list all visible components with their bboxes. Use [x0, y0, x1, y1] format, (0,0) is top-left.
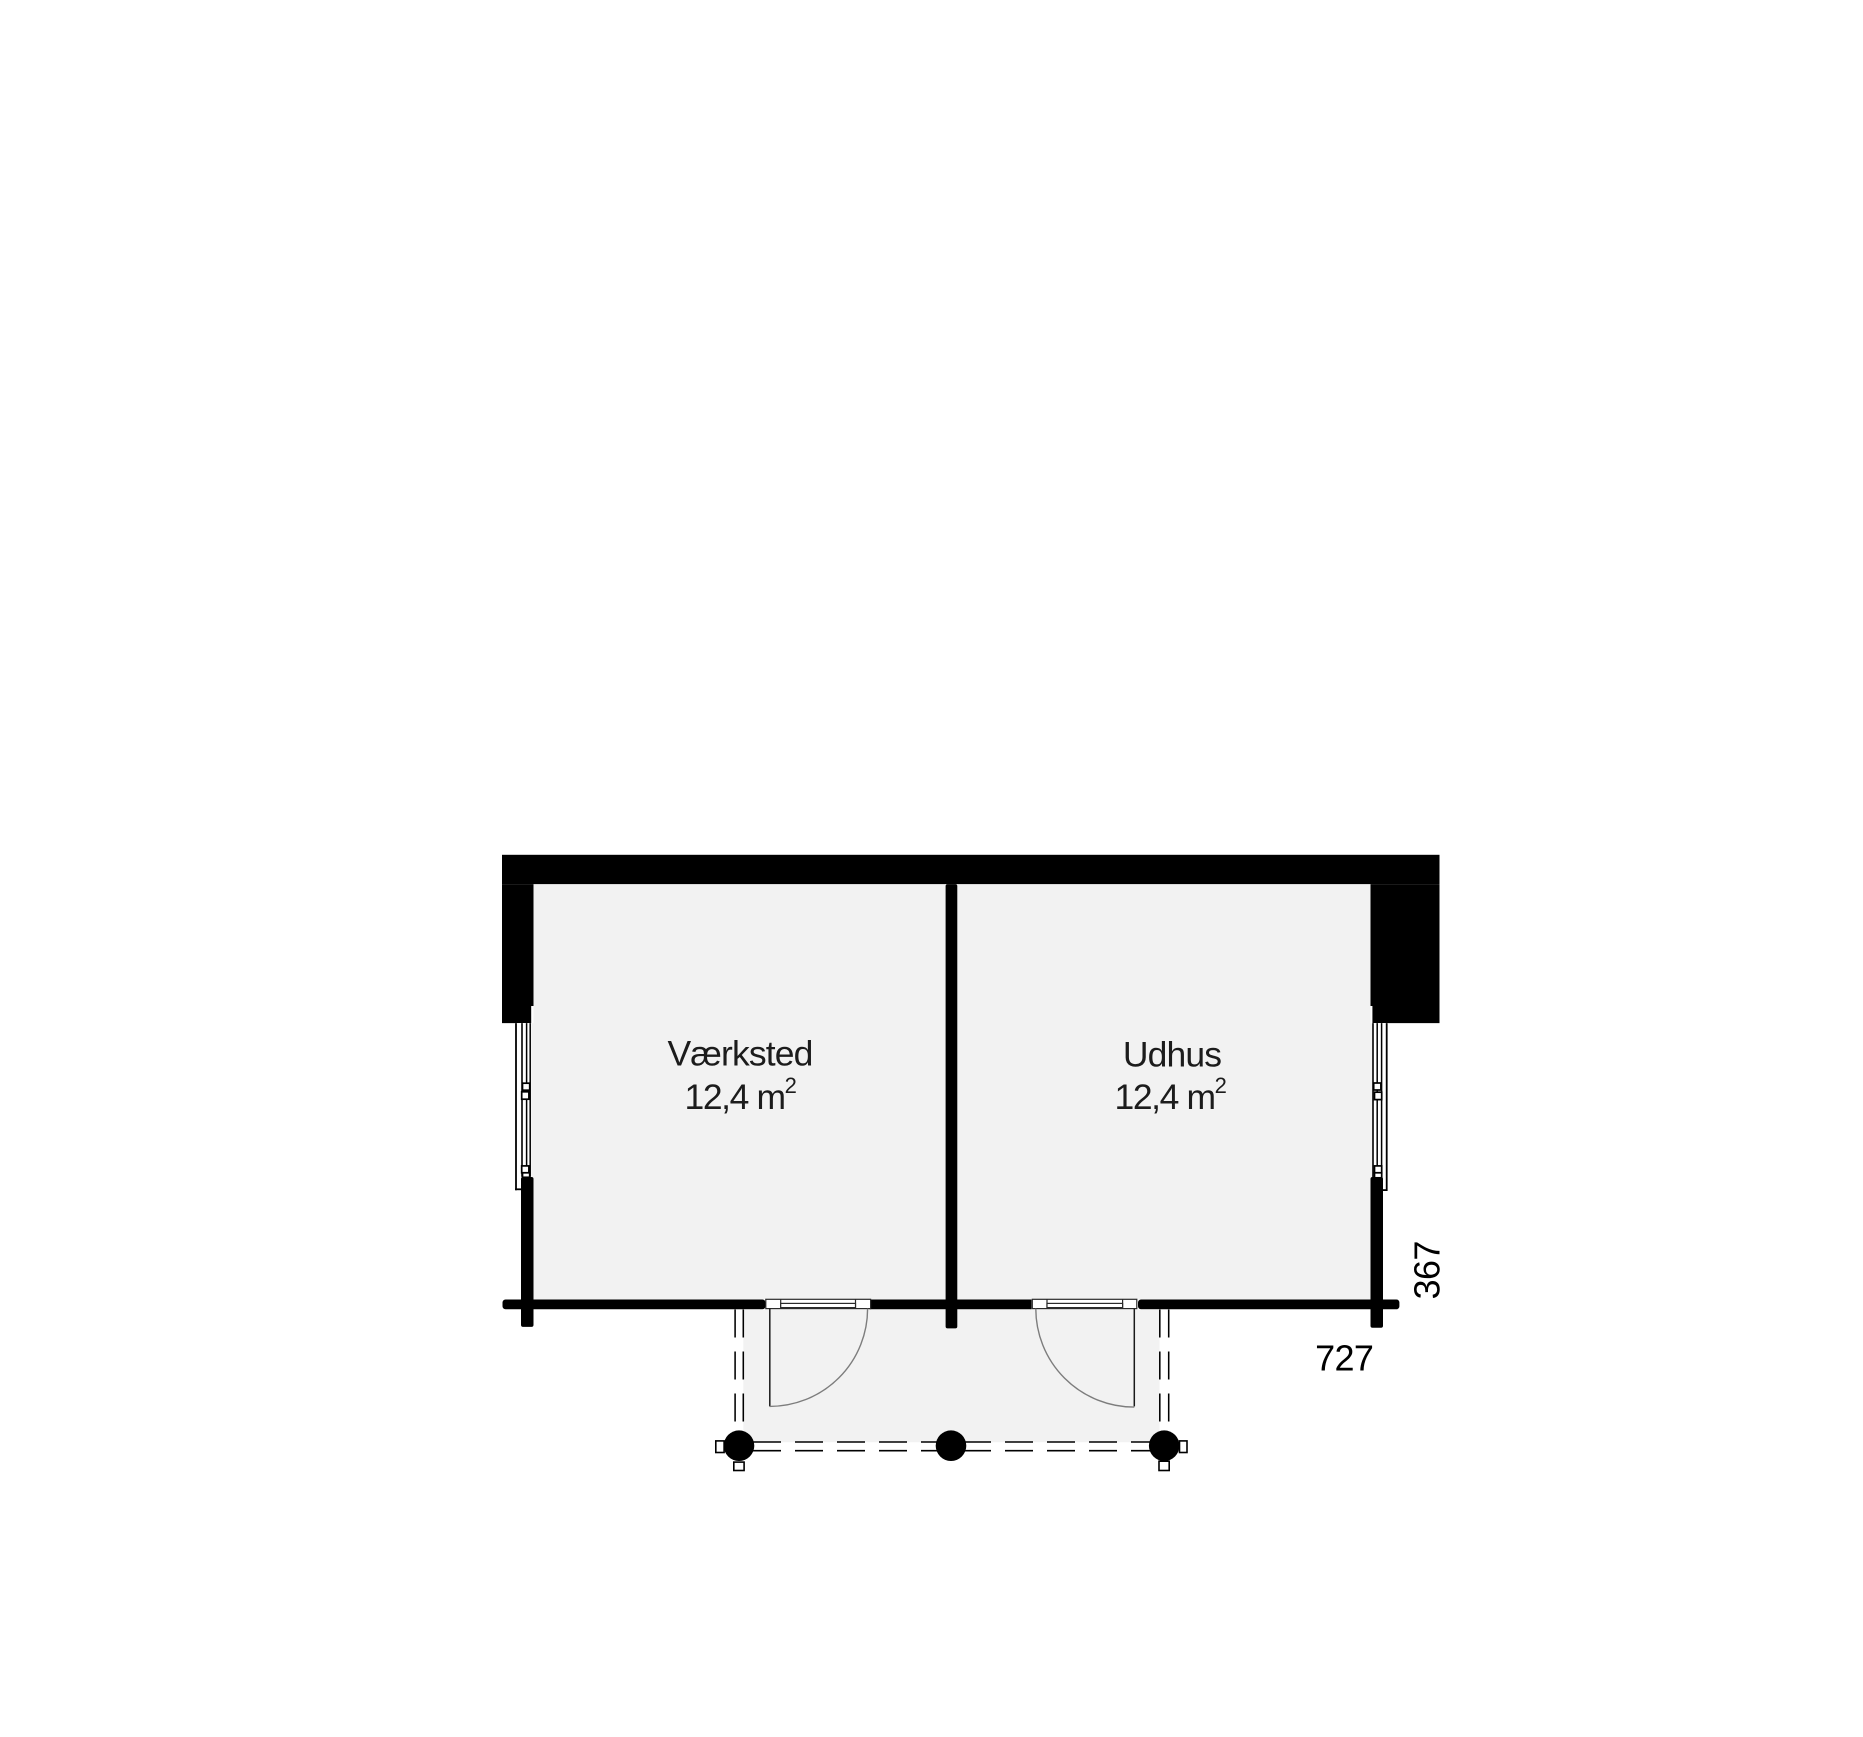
svg-text:12,4 m2: 12,4 m2 — [1115, 1073, 1227, 1117]
svg-text:727: 727 — [1315, 1338, 1373, 1379]
svg-text:367: 367 — [1406, 1241, 1447, 1299]
svg-text:Værksted: Værksted — [667, 1034, 812, 1074]
svg-text:12,4 m2: 12,4 m2 — [685, 1073, 797, 1117]
svg-text:Udhus: Udhus — [1123, 1035, 1221, 1075]
